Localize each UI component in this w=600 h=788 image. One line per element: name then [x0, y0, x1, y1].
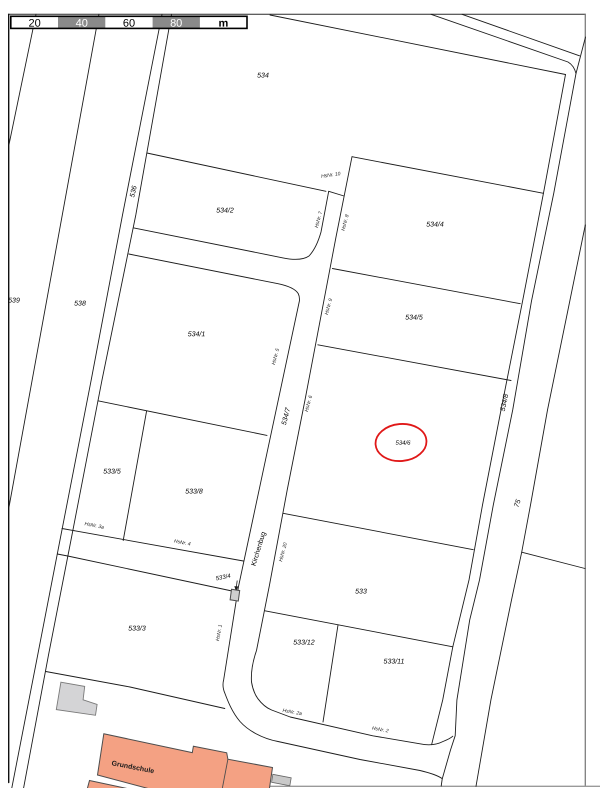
svg-text:m: m	[219, 18, 229, 30]
svg-text:534/6: 534/6	[395, 441, 411, 447]
svg-text:533/8: 533/8	[185, 488, 203, 495]
svg-text:534/2: 534/2	[216, 207, 234, 214]
svg-text:533: 533	[355, 588, 367, 595]
svg-text:533/5: 533/5	[103, 468, 121, 475]
svg-text:60: 60	[123, 18, 135, 30]
svg-text:534/5: 534/5	[405, 314, 423, 321]
svg-text:20: 20	[28, 18, 40, 30]
svg-text:533/3: 533/3	[128, 625, 146, 632]
svg-text:534/4: 534/4	[426, 221, 444, 228]
svg-text:534: 534	[257, 72, 269, 79]
svg-text:533/12: 533/12	[293, 639, 315, 646]
svg-text:534/1: 534/1	[188, 331, 206, 338]
svg-text:80: 80	[170, 18, 182, 30]
svg-text:40: 40	[76, 18, 88, 30]
svg-text:538: 538	[74, 300, 86, 307]
svg-text:533/11: 533/11	[384, 658, 405, 665]
svg-text:539: 539	[8, 297, 20, 304]
